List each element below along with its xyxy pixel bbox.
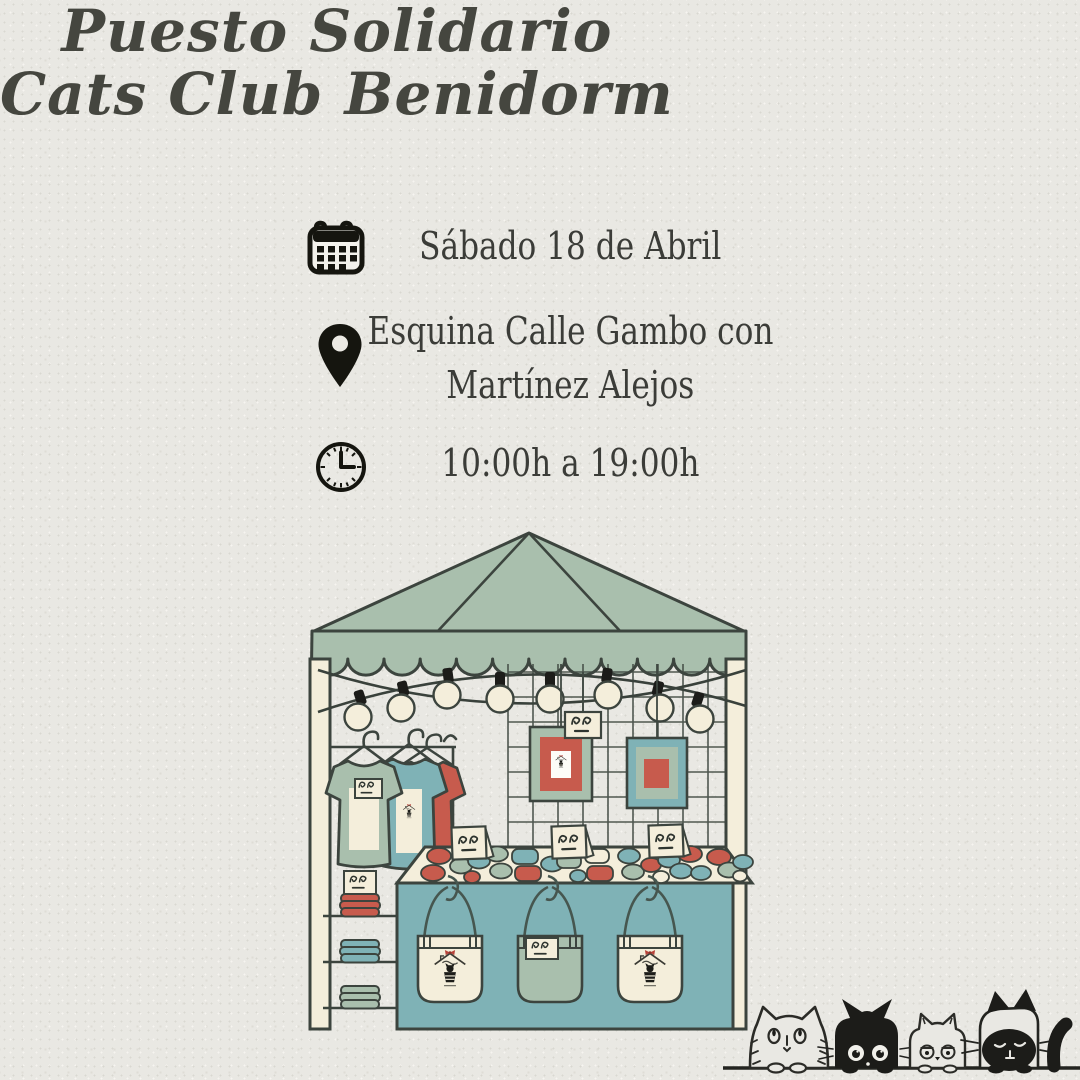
event-poster: { "poster": { "title": { "line1": "Puest… (0, 0, 1080, 1080)
tote-bag-logo-1 (418, 876, 482, 1002)
tent-canopy (312, 533, 746, 675)
price-card-on-tee (355, 779, 382, 798)
table-top (397, 847, 752, 883)
light-bulbs (345, 667, 714, 732)
tshirt-sage (326, 732, 402, 867)
siamese-cat (961, 989, 1066, 1074)
price-card-on-stack (344, 871, 376, 894)
table-front (397, 883, 733, 1029)
string-lights (318, 667, 746, 732)
frame-red-mat (530, 727, 592, 801)
hanging-tshirts (326, 730, 465, 871)
market-stall-illustration (0, 0, 1080, 1080)
event-time-text: 10:00h a 19:00h (441, 444, 699, 482)
standing-price-cards (451, 824, 690, 859)
event-date-text: Sábado 18 de Abril (419, 227, 721, 265)
cats-row (723, 989, 1080, 1074)
frame-teal (627, 738, 687, 808)
stall-post-left (310, 659, 330, 1029)
price-card-on-bag (526, 938, 558, 959)
market-table (397, 847, 752, 1029)
textile-stack-red (340, 894, 380, 917)
white-fluffy-cat (750, 1007, 828, 1073)
tote-bag-logo-2 (618, 876, 682, 1002)
folded-textiles-shelf (323, 871, 397, 1009)
event-time: 10:00h a 19:00h (290, 444, 850, 482)
event-location-line-1: Esquina Calle Gambo con (290, 312, 850, 350)
textile-stack-teal (340, 940, 380, 963)
event-date: Sábado 18 de Abril (290, 227, 850, 265)
small-white-cat (910, 1014, 965, 1073)
tshirt-red (389, 735, 465, 871)
grid-panel (508, 664, 726, 849)
hanging-price-card (565, 712, 601, 738)
title-line-1: Puesto Solidario (0, 0, 674, 63)
stall-post-right (726, 659, 746, 1029)
pin-badges (421, 846, 753, 883)
title-line-2: Cats Club Benidorm (0, 63, 674, 126)
picture-frames (530, 664, 687, 808)
tote-bag-sage (518, 876, 582, 1002)
tshirt-teal (371, 730, 447, 869)
tote-bags (418, 876, 682, 1002)
clothes-rail (330, 735, 456, 849)
textile-stack-sage (340, 986, 380, 1009)
black-cat (818, 999, 915, 1074)
page-title: Puesto Solidario Cats Club Benidorm (0, 0, 674, 125)
event-location-line-2: Martínez Alejos (290, 366, 850, 404)
